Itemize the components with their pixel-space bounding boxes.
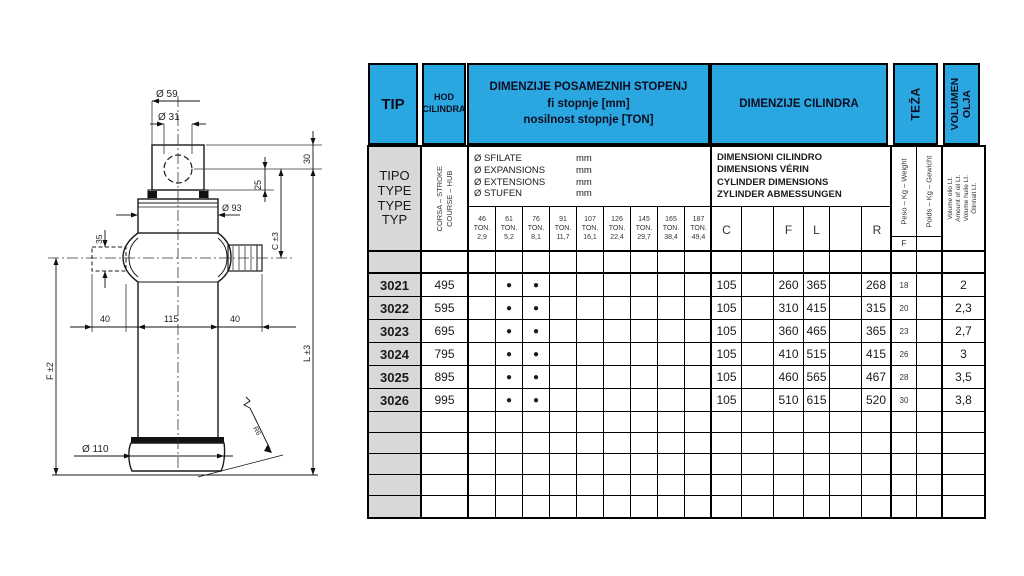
stage-legend-label: Ø EXPANSIONS [474, 165, 576, 177]
header-volume-line2: OLJA [962, 78, 974, 131]
cell-tip: 3024 [369, 343, 422, 365]
table-row: 3024 795 ●● 105 410 515 415 26 3 [369, 343, 984, 366]
dim-label-dia93: Ø 93 [222, 203, 242, 213]
dim-label-40-left: 40 [100, 314, 110, 324]
stage-dot-61: ● [496, 274, 523, 296]
cell-f: 310 [774, 297, 804, 319]
header-cylinder: DIMENZIJE CILINDRA [710, 63, 888, 145]
stage-dot-61: ● [496, 343, 523, 365]
dim-label-f: F ±2 [45, 362, 55, 380]
ton-col: 61TON.5,2 [496, 207, 523, 250]
vol-legend-line: Ölinhalt Lt. [972, 175, 980, 222]
dim-label-35: 35 [94, 234, 104, 244]
ton-col: 91TON.11,7 [550, 207, 577, 250]
stage-legend-unit: mm [576, 165, 592, 177]
subheader-cylinder: DIMENSIONI CILINDRO DIMENSIONS VÉRIN CYL… [712, 147, 892, 250]
ton-col: 187TON.49,4 [685, 207, 712, 250]
ton-col: 165TON.38,4 [658, 207, 685, 250]
cell-stroke: 595 [422, 297, 469, 319]
ton-col: 126TON.22,4 [604, 207, 631, 250]
tipo-line: TYPE [378, 184, 412, 199]
tipo-line: TYPE [378, 199, 412, 214]
dim-label-dia31: Ø 31 [158, 112, 180, 123]
cell-volume: 3 [943, 343, 984, 365]
stage-dot-61: ● [496, 366, 523, 388]
header-tip-label: TIP [381, 96, 404, 113]
header-stages-line2: fi stopnje [mm] [490, 96, 688, 113]
subheader-tipo: TIPO TYPE TYPE TYP [369, 147, 422, 250]
header-hod: HOD CILINDRA [422, 63, 466, 145]
header-hod-line2: CILINDRA [423, 104, 466, 116]
header-volume-line1: VOLUMEN [949, 78, 961, 131]
cell-l: 415 [804, 297, 830, 319]
header-stages: DIMENZIJE POSAMEZNIH STOPENJ fi stopnje … [467, 63, 710, 145]
header-hod-line1: HOD [423, 92, 466, 104]
ton-header-row: 46TON.2,9 61TON.5,2 76TON.8,1 91TON.11,7… [469, 207, 710, 250]
cell-l: 615 [804, 389, 830, 411]
empty-row [369, 496, 984, 517]
peso-label: Peso – Kg – Weight [900, 159, 909, 225]
header-stages-line3: nosilnost stopnje [TON] [490, 112, 688, 129]
cell-volume: 2,7 [943, 320, 984, 342]
cell-tip: 3025 [369, 366, 422, 388]
vol-legend-line: Volume olio Lt. [947, 175, 955, 222]
stage-dot-61: ● [496, 297, 523, 319]
stage-dot-76: ● [523, 343, 550, 365]
cell-l: 515 [804, 343, 830, 365]
cell-c: 105 [712, 343, 742, 365]
stage-dot-76: ● [523, 320, 550, 342]
corsa-line1: CORSA – STROKE [435, 166, 445, 231]
cell-weight: 26 [892, 343, 917, 365]
cell-tip: 3023 [369, 320, 422, 342]
dim-label-l: L ±3 [302, 345, 312, 362]
cell-c: 105 [712, 389, 742, 411]
cylinder-dims-legend: DIMENSIONI CILINDRO DIMENSIONS VÉRIN CYL… [712, 147, 890, 207]
subheader-poids: Poids – Kg – Gewicht [917, 147, 943, 250]
cell-stroke: 695 [422, 320, 469, 342]
corsa-line2: COURSE – HUB [445, 166, 455, 231]
cell-r: 268 [862, 274, 892, 296]
cell-volume: 3,5 [943, 366, 984, 388]
cell-r: 315 [862, 297, 892, 319]
col-l: L [804, 207, 830, 250]
col-f: F [774, 207, 804, 250]
stage-dot-61: ● [496, 320, 523, 342]
cell-weight: 28 [892, 366, 917, 388]
stage-diameter-legend: Ø SFILATEmm Ø EXPANSIONSmm Ø EXTENSIONSm… [469, 147, 710, 207]
cell-tip: 3021 [369, 274, 422, 296]
stage-dot-76: ● [523, 389, 550, 411]
cyl-legend-line: DIMENSIONI CILINDRO [717, 152, 885, 164]
cell-weight: 23 [892, 320, 917, 342]
subheader-corsa: CORSA – STROKE COURSE – HUB [422, 147, 469, 250]
cyl-legend-line: DIMENSIONS VÉRIN [717, 164, 885, 176]
technical-drawing: Ø 59 Ø 31 30 25 Ø 93 35 C ±3 40 115 40 L… [0, 0, 367, 576]
table-row: 3022 595 ●● 105 310 415 315 20 2,3 [369, 297, 984, 320]
dim-label-25: 25 [253, 180, 263, 190]
stage-legend-unit: mm [576, 177, 592, 189]
cell-stroke: 495 [422, 274, 469, 296]
dim-label-c: C ±3 [270, 232, 280, 250]
dim-label-r6: R6 [251, 426, 261, 437]
cell-f: 510 [774, 389, 804, 411]
header-weight: TEŽA [893, 63, 938, 145]
cell-c: 105 [712, 320, 742, 342]
stage-legend-unit: mm [576, 188, 592, 200]
table-row: 3025 895 ●● 105 460 565 467 28 3,5 [369, 366, 984, 389]
col-c: C [712, 207, 742, 250]
cyl-legend-line: ZYLINDER ABMESSUNGEN [717, 189, 885, 201]
subheader-peso: Peso – Kg – Weight F [892, 147, 917, 250]
cell-l: 365 [804, 274, 830, 296]
stage-legend-label: Ø EXTENSIONS [474, 177, 576, 189]
cell-l: 465 [804, 320, 830, 342]
subheader-stages: Ø SFILATEmm Ø EXPANSIONSmm Ø EXTENSIONSm… [469, 147, 712, 250]
dim-label-dia110: Ø 110 [82, 444, 109, 455]
cyl-legend-line: CYLINDER DIMENSIONS [717, 177, 885, 189]
cell-weight: 20 [892, 297, 917, 319]
cell-volume: 3,8 [943, 389, 984, 411]
table-row: 3021 495 ●● 105 260 365 268 18 2 [369, 274, 984, 297]
dim-label-dia59: Ø 59 [156, 89, 178, 100]
cell-tip: 3026 [369, 389, 422, 411]
cell-c: 105 [712, 366, 742, 388]
cell-f: 260 [774, 274, 804, 296]
stage-dot-76: ● [523, 297, 550, 319]
empty-row [369, 412, 984, 433]
col-blank [742, 207, 774, 250]
table-header-band: TIP HOD CILINDRA DIMENZIJE POSAMEZNIH ST… [367, 63, 986, 145]
col-r: R [862, 207, 892, 250]
stage-legend-label: Ø STUFEN [474, 188, 576, 200]
cell-c: 105 [712, 274, 742, 296]
spacer-row [369, 252, 984, 274]
col-blank [830, 207, 862, 250]
cell-r: 520 [862, 389, 892, 411]
cell-stroke: 895 [422, 366, 469, 388]
empty-row [369, 433, 984, 454]
cell-c: 105 [712, 297, 742, 319]
page: Ø 59 Ø 31 30 25 Ø 93 35 C ±3 40 115 40 L… [0, 0, 1024, 576]
cell-r: 415 [862, 343, 892, 365]
dim-label-30: 30 [302, 154, 312, 164]
cell-tip: 3022 [369, 297, 422, 319]
dim-label-40-right: 40 [230, 314, 240, 324]
table-subheader-row: TIPO TYPE TYPE TYP CORSA – STROKE COURSE… [369, 147, 984, 252]
stage-legend-label: Ø SFILATE [474, 153, 576, 165]
ton-col: 107TON.16,1 [577, 207, 604, 250]
cell-stroke: 795 [422, 343, 469, 365]
table-row: 3023 695 ●● 105 360 465 365 23 2,7 [369, 320, 984, 343]
ton-col: 145TON.29,7 [631, 207, 658, 250]
cell-f: 360 [774, 320, 804, 342]
dim-label-115: 115 [164, 314, 178, 324]
poids-label: Poids – Kg – Gewicht [925, 156, 934, 228]
vol-legend-line: Amount of oil Lt. [955, 175, 963, 222]
stage-dot-76: ● [523, 366, 550, 388]
stage-legend-unit: mm [576, 153, 592, 165]
cell-weight: 30 [892, 389, 917, 411]
header-stages-line1: DIMENZIJE POSAMEZNIH STOPENJ [490, 79, 688, 96]
cell-r: 365 [862, 320, 892, 342]
header-weight-label: TEŽA [909, 87, 923, 120]
subheader-volume: Volume olio Lt. Amount of oil Lt. Volume… [943, 147, 984, 250]
ton-col: 76TON.8,1 [523, 207, 550, 250]
stage-dot-61: ● [496, 389, 523, 411]
empty-row [369, 454, 984, 475]
cell-volume: 2,3 [943, 297, 984, 319]
stage-dot-76: ● [523, 274, 550, 296]
cell-weight: 18 [892, 274, 917, 296]
empty-row [369, 475, 984, 496]
table-row: 3026 995 ●● 105 510 615 520 30 3,8 [369, 389, 984, 412]
cell-l: 565 [804, 366, 830, 388]
header-volume: VOLUMEN OLJA [943, 63, 980, 145]
spec-table: TIPO TYPE TYPE TYP CORSA – STROKE COURSE… [367, 145, 986, 519]
ton-col: 46TON.2,9 [469, 207, 496, 250]
header-tip: TIP [368, 63, 418, 145]
tipo-line: TYP [382, 213, 407, 228]
tipo-line: TIPO [379, 169, 409, 184]
header-cylinder-label: DIMENZIJE CILINDRA [739, 96, 858, 113]
cylinder-cols-row: C F L R [712, 207, 890, 250]
peso-sub-f: F [902, 237, 907, 250]
cell-f: 410 [774, 343, 804, 365]
cell-volume: 2 [943, 274, 984, 296]
cell-f: 460 [774, 366, 804, 388]
cell-stroke: 995 [422, 389, 469, 411]
cell-r: 467 [862, 366, 892, 388]
